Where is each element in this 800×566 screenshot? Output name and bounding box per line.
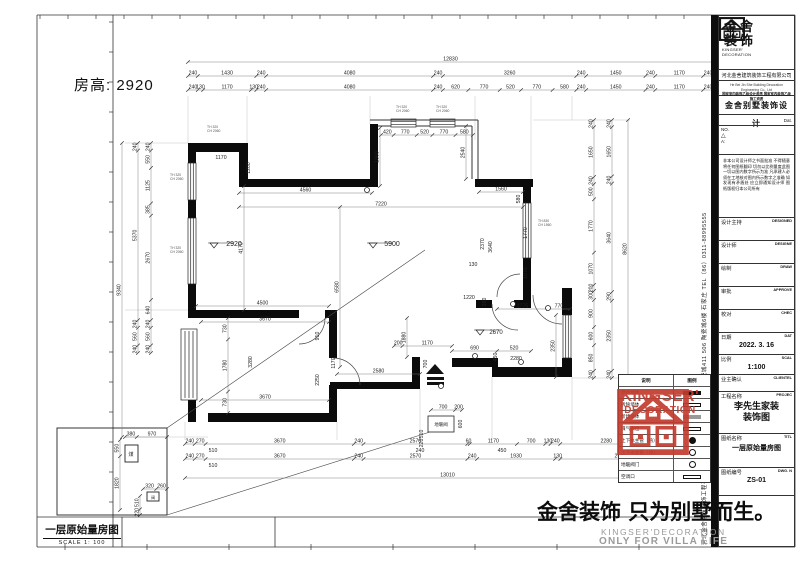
dim-label: 1860	[375, 151, 381, 163]
dim-label: 240	[257, 85, 266, 91]
window-note: CH 2060	[170, 177, 183, 181]
dim-label: 240	[434, 71, 443, 77]
dim-label: 1170	[422, 341, 433, 347]
room-height-note: 房高: 2920	[74, 74, 154, 95]
company-english: He Bei Jin She Building Decoration Engin…	[719, 81, 794, 96]
dim-chain: 320260	[141, 484, 169, 491]
plan-label: 1220	[463, 295, 475, 301]
dim-label: 12830	[443, 57, 458, 63]
dim-label: 2350	[607, 330, 613, 342]
tb-row-label-en: DAT	[784, 334, 792, 341]
dim-label: 550	[146, 155, 152, 164]
tb-row-label-cn: 设计师	[721, 242, 737, 249]
dim-chain: 7220	[237, 202, 525, 209]
dim-label: 5370	[133, 229, 139, 241]
dim-label: 240	[646, 71, 655, 77]
dim-label: 240	[133, 320, 139, 329]
dim-label: 520	[506, 85, 515, 91]
tb-row-label-en: DRAW	[780, 265, 792, 272]
dim-chain: 690520	[450, 346, 533, 353]
dim-chain: 2402703670240257024019301302970240	[183, 454, 692, 461]
dim-label: 240	[646, 85, 655, 91]
dim-chain: 24014302404080240326024014502401170240	[186, 71, 715, 78]
plan-label: 450	[498, 448, 507, 454]
dim-label: 240	[589, 370, 595, 379]
plan-label: 3640	[488, 241, 494, 253]
dim-label: 3260	[504, 71, 516, 77]
dim-label: 240	[133, 345, 139, 354]
tb-row-label-en: CLIENTEL	[773, 376, 792, 383]
tb-row-label-cn: 业主确认	[721, 376, 742, 383]
dim-label: 260	[157, 484, 166, 490]
dim-label: 240	[354, 439, 363, 445]
dim-chain: 3670	[199, 395, 331, 402]
tb-row-label-en: DWG. N	[778, 469, 792, 476]
dim-label: 240	[146, 320, 152, 329]
dim-label: 385	[146, 205, 152, 214]
dim-label: 130	[553, 454, 562, 460]
dim-label: 3670	[274, 454, 286, 460]
dim-label: 240	[468, 454, 477, 460]
dim-label: 2540	[461, 147, 467, 159]
dim-label: 1775	[517, 304, 529, 310]
dim-label: 560	[146, 332, 152, 341]
dim-label: 550	[115, 444, 121, 453]
titleblock-row: 设计师 DESIGNE	[719, 241, 794, 264]
dim-label: 240	[607, 119, 613, 128]
dim-label: 200	[589, 283, 595, 292]
titleblock-logo-section: 金舍 装饰 KINGSER' DECORATION	[719, 16, 794, 70]
tb-row-label-en: PROJEC	[776, 393, 792, 400]
dim-label: 1170	[488, 439, 499, 445]
date-small-label: Dat.	[719, 115, 794, 126]
dim-label: 1450	[610, 85, 622, 91]
plan-label: 2670	[489, 330, 503, 336]
dim-label: 1125	[146, 180, 152, 191]
legend-symbol-icon	[683, 475, 701, 479]
plan-label: 510	[419, 430, 425, 439]
dim-label: 700	[527, 439, 536, 445]
dim-label: 240	[257, 71, 266, 77]
dim-label: 730	[223, 324, 229, 333]
dim-label: 60	[466, 439, 472, 445]
tb-row-label-cn: 设计主持	[721, 219, 742, 226]
dim-chain: 2401301170130240408024062077052077058024…	[186, 85, 715, 92]
dim-label: 240	[607, 370, 613, 379]
tb-row-label-cn: 工程名称	[721, 393, 742, 400]
dim-label: 2570	[410, 454, 422, 460]
tb-row-value: 2022. 3. 16	[721, 342, 792, 349]
tb-row-label-cn: 比例	[721, 356, 731, 363]
dim-chain: 8620	[623, 118, 630, 380]
titleblock-row: 图纸名称 TITL一层原始量房图	[719, 434, 794, 468]
plan-label: 220	[419, 439, 425, 448]
plan-label: 2370	[480, 238, 486, 250]
dim-label: 4080	[344, 85, 356, 91]
dim-chain: 4560	[237, 188, 374, 195]
window-note: CH 2060	[396, 109, 409, 113]
tb-row-label-cn: 图纸编号	[721, 469, 742, 476]
dim-label: 620	[451, 85, 460, 91]
dim-chain: 420770520770580	[379, 130, 475, 137]
dim-label: 3640	[607, 232, 613, 244]
dim-label: 380	[127, 432, 136, 438]
legend-symbol	[674, 471, 710, 482]
dim-label: 770	[555, 304, 564, 310]
dim-label: 850	[589, 354, 595, 363]
dim-chain: 4170	[239, 184, 246, 312]
titleblock-row: 业主确认 CLIENTEL	[719, 375, 794, 392]
titleblock-row: 审批 APPROVE	[719, 287, 794, 310]
dim-label: 240	[607, 176, 613, 185]
window-note: CH 2060	[207, 129, 220, 133]
a-label: A:	[721, 139, 792, 144]
dim-label: 300	[589, 291, 595, 300]
dim-label: 700	[439, 405, 448, 411]
level-mark-icon	[476, 330, 484, 335]
plan-label: 1200	[246, 162, 252, 174]
titleblock-row: 校对 CHEC	[719, 310, 794, 333]
legend-row: 地暖阀门	[619, 458, 710, 470]
plan-label: 910	[315, 332, 321, 341]
dim-label: 1780	[223, 360, 229, 372]
plan-label: 1170	[331, 357, 337, 368]
plan-label: 2250	[315, 374, 321, 386]
level-mark-icon	[369, 243, 377, 248]
dim-label: 240	[133, 142, 139, 151]
brand-en-2: DECORATION	[722, 53, 751, 58]
legend-symbol-icon	[689, 461, 696, 468]
window-note: CH 2060	[436, 109, 449, 113]
dim-label: 1930	[510, 454, 522, 460]
plan-label: 600	[458, 420, 464, 429]
dim-chain: 9340	[117, 141, 124, 439]
legend-symbol-icon	[689, 449, 696, 456]
dim-label: 1170	[674, 71, 685, 77]
dim-chain: 510220	[135, 494, 142, 517]
tb-row-label-cn: 审批	[721, 288, 731, 295]
dim-label: 1070	[589, 263, 595, 275]
pipe-circle-icon	[511, 302, 516, 307]
plan-label: 450	[493, 353, 499, 362]
legend-header-desc: 说明	[619, 375, 674, 386]
dim-chain: 2580	[335, 369, 422, 376]
pipe-circle-icon	[439, 384, 444, 389]
plan-label: 700	[423, 360, 429, 369]
dim-label: 1650	[607, 146, 613, 158]
plan-label: 510	[209, 448, 218, 454]
disclaimer-text: 非本公司设计师之书面批准 不得随意将任何图纸翻印 切勿以比例量度此图 一切以图内…	[719, 155, 794, 218]
plan-label: 360	[482, 298, 488, 307]
drawing-sheet: 1283024014302404080240326024014502401170…	[0, 0, 800, 566]
dim-label: 240	[577, 85, 586, 91]
company-stamp: KINGSER' DECORATION	[617, 389, 703, 416]
dim-label: 240	[551, 439, 560, 445]
kingser-logo-small-icon	[719, 16, 745, 42]
dim-label: 240	[189, 71, 198, 77]
dim-chain: 1880	[402, 316, 409, 359]
titleblock-row: 图纸编号 DWG. NZS-01	[719, 468, 794, 496]
dim-label: 520	[510, 346, 519, 352]
dim-label: 240	[146, 345, 152, 354]
dim-chain: 12830	[186, 57, 715, 64]
dim-chain: 700200	[429, 405, 464, 412]
dim-label: 560	[133, 332, 139, 341]
drawing-title: 一层原始量房图	[43, 522, 121, 539]
dim-label: 1560	[495, 187, 507, 193]
titleblock-row: 工程名称 PROJEC李先生家装装饰图	[719, 392, 794, 434]
dim-label: 510	[135, 498, 141, 507]
dim-label: 770	[533, 85, 542, 91]
plan-label: 煤	[128, 451, 133, 458]
drawing-name-strip: 一层原始量房图 SCALE 1: 100	[42, 520, 122, 546]
revision-section: NO. △ A:	[719, 126, 794, 155]
watermark-chinese: 金舍装饰 只为别墅而生。	[537, 496, 775, 526]
dim-chain: 5501820	[115, 438, 122, 512]
dim-label: 220	[135, 508, 141, 517]
dim-chain: 24055011253852670640240560240	[146, 141, 153, 355]
company-en-line: He Bei Jin She Building Decoration Engin…	[721, 83, 792, 92]
tb-row-label-en: CHEC	[781, 311, 792, 318]
dim-label: 3670	[259, 317, 271, 323]
dim-label: 580	[460, 130, 469, 136]
dim-label: 600	[589, 332, 595, 341]
dim-label: 420	[383, 130, 392, 136]
dim-label: 200	[454, 405, 463, 411]
dim-label: 2670	[146, 252, 152, 264]
titleblock-row: 日期 DAT2022. 3. 16	[719, 333, 794, 355]
tb-row-label-en: APPROVE	[773, 288, 792, 295]
plan-label: 580	[516, 195, 522, 204]
plan-label: 240	[416, 448, 425, 454]
legend-row: 空调口	[619, 470, 710, 482]
window-note: CH 1560	[538, 223, 551, 227]
dim-label: 270	[196, 439, 205, 445]
tb-row-value: ZS-01	[721, 477, 792, 484]
plan-label: 1770	[523, 227, 529, 239]
plan-label: 1170	[215, 155, 226, 161]
pipe-circle-icon	[546, 306, 551, 311]
tb-row-label-en: TITL	[784, 435, 792, 442]
dim-label: 13010	[440, 473, 455, 479]
tb-row-value: 1:100	[721, 364, 792, 371]
dim-label: 7220	[375, 202, 387, 208]
company-name: 河北金舍建筑装饰工程有限公司	[719, 70, 794, 81]
dim-label: 4080	[344, 71, 356, 77]
dim-label: 770	[440, 130, 449, 136]
kingser-logo-icon	[617, 389, 689, 455]
dim-label: 240	[354, 454, 363, 460]
dim-label: 2280	[600, 439, 612, 445]
pipe-circle-icon	[473, 354, 478, 359]
tb-row-label-en: SCAL	[782, 356, 792, 363]
tb-row-label-cn: 图纸名称	[721, 435, 742, 442]
dim-label: 3670	[274, 439, 286, 445]
dim-label: 320	[145, 484, 154, 490]
dim-label: 580	[560, 85, 569, 91]
dim-label: 1650	[589, 146, 595, 158]
plan-label: 130	[469, 262, 478, 268]
dim-label: 2350	[551, 340, 557, 352]
dim-label: 8620	[623, 243, 629, 255]
tb-row-label-cn: 校对	[721, 311, 731, 318]
brand-english: KINGSER' DECORATION	[722, 48, 751, 57]
tb-row-value: 一层原始量房图	[721, 443, 792, 453]
revision-triangle-icon: △	[721, 132, 792, 139]
dim-label: 4500	[257, 301, 269, 307]
dim-chain: 1775770	[495, 304, 572, 311]
titleblock-row: 绘制 DRAW	[719, 264, 794, 287]
dim-label: 900	[589, 309, 595, 318]
dim-label: 6580	[335, 281, 341, 293]
dim-chain: 2405370240560240	[133, 141, 140, 355]
watermark-english-2: ONLY FOR VILLA LIFE	[599, 536, 728, 547]
dim-label: 730	[223, 398, 229, 407]
dim-label: 970	[148, 432, 157, 438]
tb-row-label-en: DESIGNED	[772, 219, 792, 226]
plan-label: 510	[209, 463, 218, 469]
plan-label: 地暖阀	[434, 421, 448, 428]
dim-label: 2580	[373, 369, 385, 375]
legend-label: 空调口	[619, 471, 674, 482]
dim-label: 770	[480, 85, 489, 91]
dim-label: 1170	[222, 85, 233, 91]
pipe-circle-icon	[365, 188, 370, 193]
pipe-circle-icon	[519, 360, 524, 365]
tb-row-label-cn: 日期	[721, 334, 731, 341]
dim-label: 1450	[610, 71, 622, 77]
dim-label: 4560	[300, 188, 312, 194]
dim-chain: 240165024050017701070200300900600850240	[589, 118, 596, 380]
level-marks-layer	[208, 243, 500, 335]
plan-label: 2920	[226, 241, 242, 248]
dim-label: 770	[401, 130, 410, 136]
title-block: 金舍 装饰 KINGSER' DECORATION 河北金舍建筑装饰工程有限公司…	[718, 15, 795, 547]
dim-label: 240	[186, 439, 195, 445]
dim-label: 9340	[117, 284, 123, 296]
dim-label: 1170	[674, 85, 685, 91]
window-note: CH 2060	[170, 250, 183, 254]
dim-label: 1770	[589, 220, 595, 232]
tb-row-value: 李先生家装装饰图	[721, 401, 792, 423]
dim-label: 240	[577, 71, 586, 77]
dim-chain: 240165024036402902350240	[607, 118, 614, 380]
legend-label: 地暖阀门	[619, 459, 674, 470]
dim-label: 240	[589, 119, 595, 128]
plan-label: 1070	[523, 267, 529, 279]
dim-label: 290	[607, 292, 613, 301]
legend-symbol	[674, 459, 710, 470]
tb-row-label-cn: 绘制	[721, 265, 731, 272]
dim-chain: 380970	[123, 432, 169, 439]
dim-chain: 4500	[194, 301, 331, 308]
legend-header-symbol: 图例	[674, 375, 710, 386]
design-title: 金舍别墅装饰设计	[719, 96, 794, 115]
dim-label: 130	[196, 85, 205, 91]
level-mark-icon	[210, 243, 218, 248]
plan-label: 5900	[384, 241, 400, 248]
titleblock-row: 设计主持 DESIGNED	[719, 218, 794, 241]
plan-label: 3280	[248, 356, 254, 368]
dim-label: 1880	[402, 332, 408, 344]
dim-label: 240	[434, 85, 443, 91]
plan-label: 阀	[151, 494, 155, 500]
titleblock-divider-bar	[711, 15, 718, 547]
dim-label: 1430	[221, 71, 233, 77]
dim-label: 1820	[115, 477, 121, 489]
titleblock-row: 比例 SCAL1:100	[719, 355, 794, 375]
tb-row-label-en: DESIGNE	[775, 242, 792, 249]
dim-label: 520	[420, 130, 429, 136]
dim-label: 3670	[259, 395, 271, 401]
dim-label: 240	[589, 176, 595, 185]
drawing-scale: SCALE 1: 100	[42, 540, 122, 546]
dim-label: 690	[470, 346, 479, 352]
dim-label: 270	[196, 454, 205, 460]
dim-chain: 1560	[477, 187, 525, 194]
dim-label: 240	[146, 142, 152, 151]
dim-label: 500	[589, 187, 595, 196]
legend-symbol-icon	[689, 437, 696, 444]
dim-label: 240	[186, 454, 195, 460]
dim-label: 640	[146, 306, 152, 315]
